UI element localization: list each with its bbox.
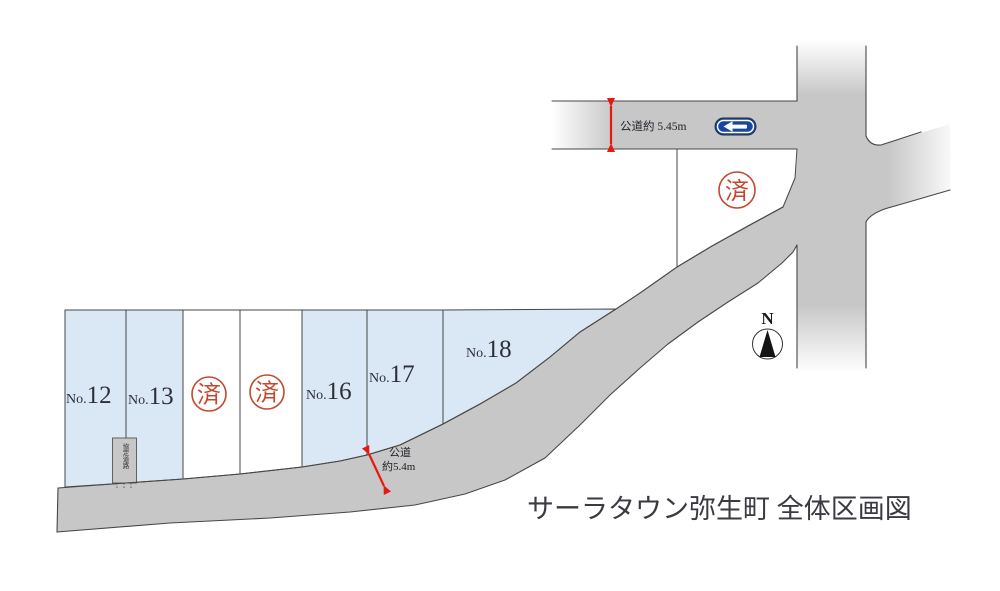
sold-stamp-1: 済 bbox=[192, 377, 226, 411]
road-fade-bottom bbox=[796, 305, 868, 372]
svg-text:済: 済 bbox=[725, 178, 749, 205]
svg-text:済: 済 bbox=[255, 380, 279, 407]
north-label: N bbox=[761, 309, 774, 328]
site-plan-map: 協定道路 済 済 済 No.12 No.13 bbox=[0, 0, 1000, 591]
dimension-label-front-1: 公道 bbox=[389, 445, 411, 459]
svg-text:済: 済 bbox=[197, 382, 221, 409]
sold-stamp-2: 済 bbox=[250, 375, 284, 409]
page-title: サーラタウン弥生町 全体区画図 bbox=[527, 494, 912, 524]
dimension-label-front-2: 約5.4m bbox=[382, 459, 416, 473]
site-plan-canvas: 協定道路 済 済 済 No.12 No.13 bbox=[0, 0, 1000, 591]
road-fade-top bbox=[796, 40, 867, 95]
dimension-label-top: 公道約 5.45m bbox=[620, 119, 686, 133]
road-fade-branch bbox=[888, 116, 958, 228]
structure-agreement-road: 協定道路 bbox=[113, 438, 137, 489]
one-way-sign-icon bbox=[715, 118, 756, 135]
road-fade-left bbox=[552, 100, 614, 150]
north-compass-icon: N bbox=[753, 309, 783, 359]
